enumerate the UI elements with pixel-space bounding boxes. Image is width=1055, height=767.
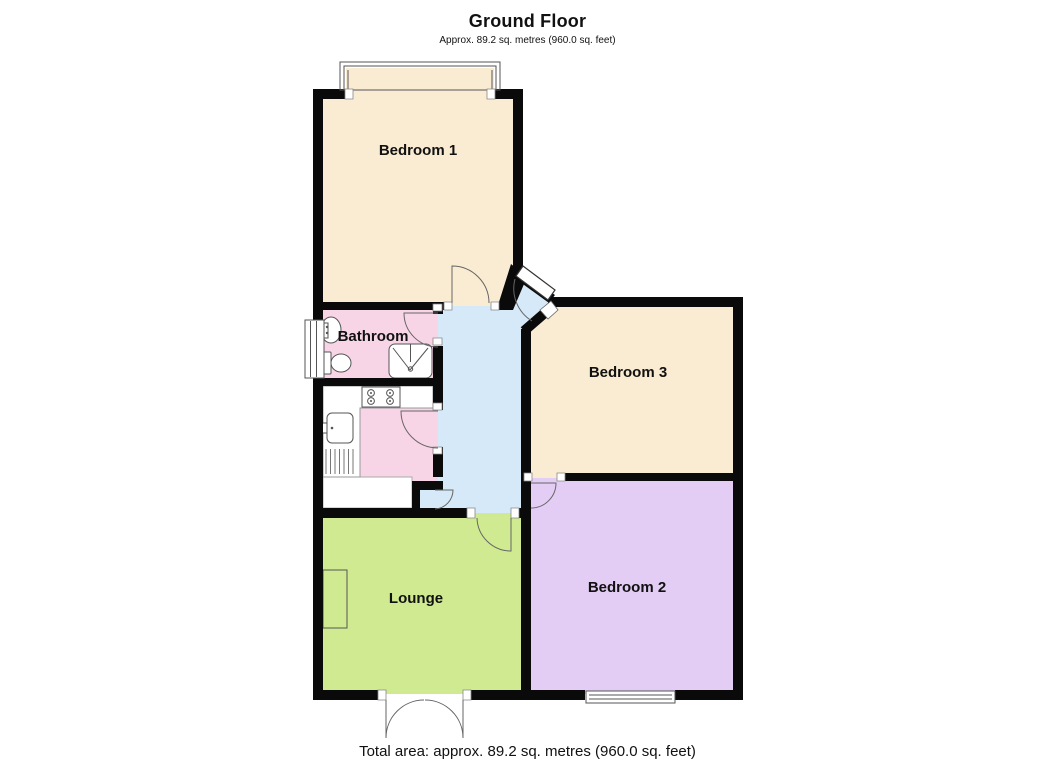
total-area-caption: Total area: approx. 89.2 sq. metres (960… bbox=[0, 743, 1055, 760]
floorplan-page: Ground Floor Approx. 89.2 sq. metres (96… bbox=[0, 0, 1055, 767]
french-door-right-swing bbox=[425, 700, 463, 738]
shower bbox=[389, 344, 432, 378]
room-bedroom-1 bbox=[318, 94, 516, 306]
label-bedroom-1: Bedroom 1 bbox=[379, 142, 457, 159]
title-block: Ground Floor Approx. 89.2 sq. metres (96… bbox=[0, 11, 1055, 46]
hob bbox=[362, 387, 400, 407]
label-lounge: Lounge bbox=[389, 590, 443, 607]
page-title: Ground Floor bbox=[0, 11, 1055, 32]
bedroom2-window bbox=[586, 691, 675, 703]
page-subtitle: Approx. 89.2 sq. metres (960.0 sq. feet) bbox=[0, 35, 1055, 46]
toilet bbox=[322, 352, 351, 374]
label-bedroom-3: Bedroom 3 bbox=[589, 364, 667, 381]
bathroom-window bbox=[305, 320, 324, 378]
room-bedroom-3 bbox=[525, 301, 738, 478]
room-store-cupboard bbox=[323, 477, 412, 508]
floorplan-drawing: Bedroom 1 Bathroom Bedroom 3 Bedroom 2 L… bbox=[0, 0, 1055, 767]
french-door-left-swing bbox=[386, 700, 424, 738]
drainer bbox=[326, 449, 353, 474]
label-bathroom: Bathroom bbox=[338, 328, 409, 345]
label-bedroom-2: Bedroom 2 bbox=[588, 579, 666, 596]
